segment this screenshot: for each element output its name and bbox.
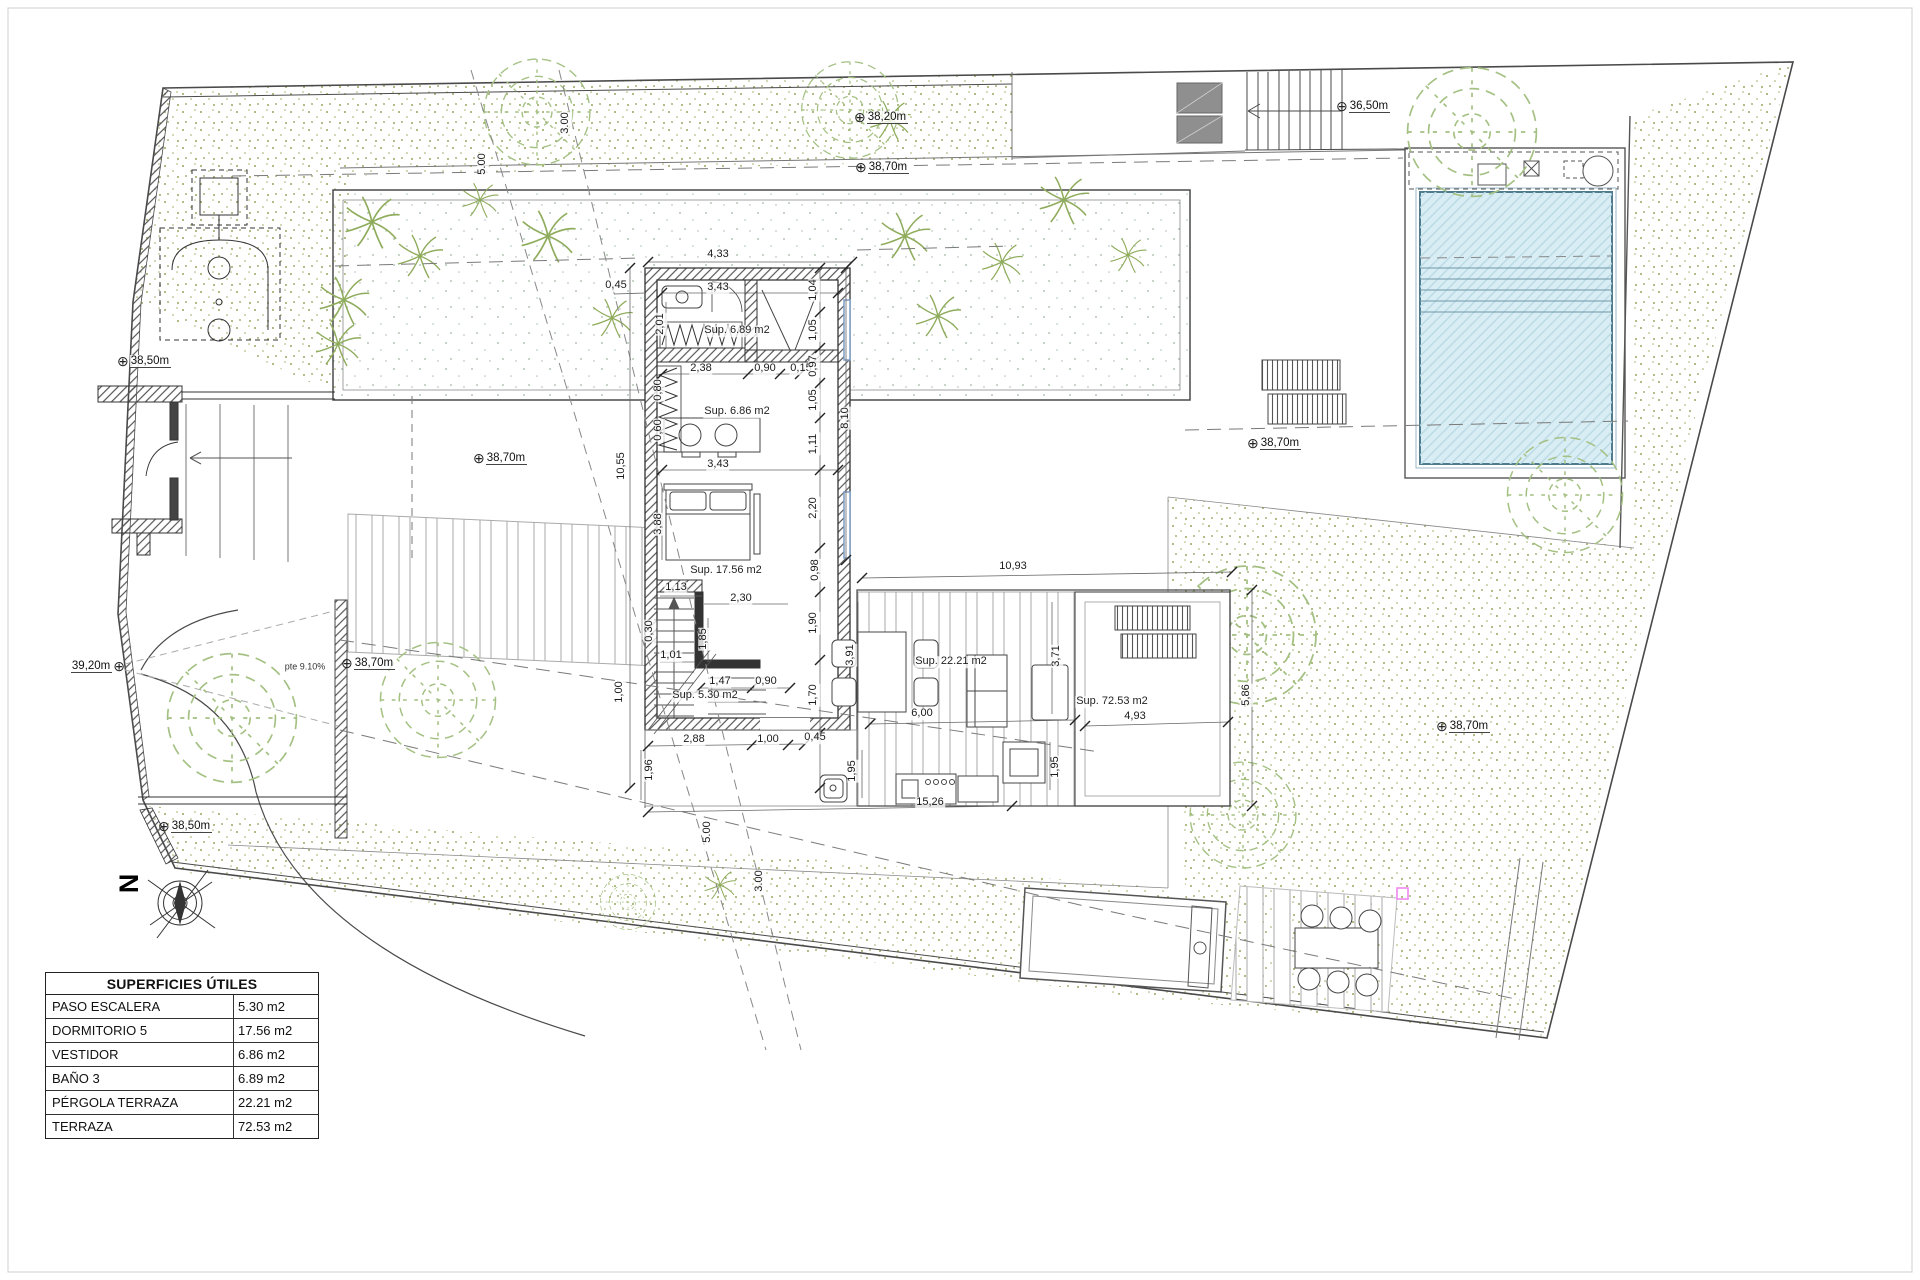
door-opening bbox=[760, 718, 810, 730]
dimension-label: 3,43 bbox=[706, 459, 729, 471]
dimension-label: 3,71 bbox=[1051, 644, 1063, 667]
elevation-target-icon: ⊕ bbox=[158, 819, 170, 833]
dimension-label: 0,45 bbox=[604, 280, 627, 292]
room-area-label: Sup. 17.56 m2 bbox=[689, 565, 763, 577]
compass-rose bbox=[148, 870, 215, 938]
elevation-value: 38,70m bbox=[868, 161, 909, 174]
dimension-label: 3.00 bbox=[754, 869, 766, 892]
elevation-marker: ⊕38,50m bbox=[158, 819, 212, 833]
elevation-target-icon: ⊕ bbox=[473, 451, 485, 465]
elevation-marker: ⊕38,20m bbox=[854, 110, 908, 124]
dimension-label: 1,85 bbox=[698, 627, 710, 650]
dimension-label: 0,90 bbox=[754, 676, 777, 688]
dimension-label: 1,47 bbox=[708, 676, 731, 688]
dimension-label: 1,70 bbox=[808, 683, 820, 706]
dimension-label: 3,43 bbox=[706, 282, 729, 294]
dimension-label: 10,93 bbox=[998, 561, 1028, 573]
elevation-marker: ⊕38,50m bbox=[117, 354, 171, 368]
dimension-label: 1,13 bbox=[664, 582, 687, 594]
table-row: PASO ESCALERA5.30 m2 bbox=[46, 995, 318, 1019]
dimension-label: 1,96 bbox=[644, 758, 656, 781]
elevation-marker: ⊕36,50m bbox=[1336, 99, 1390, 113]
elevation-target-icon: ⊕ bbox=[854, 110, 866, 124]
dimension-label: 5.00 bbox=[702, 820, 714, 843]
elevation-value: 38,70m bbox=[1260, 437, 1301, 450]
dimension-label: 1,05 bbox=[808, 318, 820, 341]
surface-table-body: PASO ESCALERA5.30 m2 DORMITORIO 517.56 m… bbox=[46, 995, 318, 1138]
chair bbox=[832, 678, 856, 706]
elevation-marker: ⊕38,70m bbox=[473, 451, 527, 465]
elevation-marker: ⊕38,70m bbox=[1247, 436, 1301, 450]
slope-note: pte 9.10% bbox=[284, 662, 327, 671]
dimension-label: 1,95 bbox=[847, 759, 859, 782]
elevation-target-icon: ⊕ bbox=[855, 160, 867, 174]
elevation-target-icon: ⊕ bbox=[1436, 719, 1448, 733]
dimension-label: 0,60 bbox=[653, 418, 665, 441]
dimension-label: 1,04 bbox=[808, 278, 820, 301]
elevation-target-icon: ⊕ bbox=[1336, 99, 1348, 113]
elevation-target-icon: ⊕ bbox=[117, 354, 129, 368]
elevation-value: 36,50m bbox=[1349, 100, 1390, 113]
dimension-label: 4,93 bbox=[1123, 711, 1146, 723]
elevation-marker: 39,20m⊕ bbox=[71, 659, 125, 673]
chair bbox=[914, 678, 938, 706]
dimension-label: 1,90 bbox=[808, 611, 820, 634]
kitchen-counter bbox=[958, 776, 998, 802]
garden-table bbox=[1295, 928, 1378, 968]
dimension-label: 6,00 bbox=[910, 708, 933, 720]
dimension-label: 1,00 bbox=[756, 734, 779, 746]
dimension-label: 5,86 bbox=[1241, 683, 1253, 706]
dimension-label: 2,01 bbox=[655, 312, 667, 335]
dimension-label: 15,26 bbox=[915, 797, 945, 809]
table-row: VESTIDOR6.86 m2 bbox=[46, 1043, 318, 1067]
dimension-label: 1,00 bbox=[614, 680, 626, 703]
dimension-label: 2,30 bbox=[729, 593, 752, 605]
dimension-label: 3,91 bbox=[845, 643, 857, 666]
elevation-marker: ⊕38,70m bbox=[1436, 719, 1490, 733]
surface-table-title: SUPERFICIES ÚTILES bbox=[46, 973, 318, 995]
elevation-value: 38,70m bbox=[486, 452, 527, 465]
elevation-value: 38,20m bbox=[867, 111, 908, 124]
dimension-label: 0,90 bbox=[753, 363, 776, 375]
site-plan-sheet: N 4,330,453,432,012,380,900,150,800,603,… bbox=[0, 0, 1920, 1280]
dimension-label: 3.00 bbox=[560, 111, 572, 134]
room-area-label: Sup. 6.86 m2 bbox=[703, 406, 770, 418]
dimension-label: 0,97 bbox=[808, 354, 820, 377]
dimension-label: 0,45 bbox=[803, 732, 826, 744]
elevation-marker: ⊕38,70m bbox=[855, 160, 909, 174]
spa-structure bbox=[1020, 888, 1226, 992]
roof-panels bbox=[1177, 83, 1222, 143]
dimension-label: 1,01 bbox=[659, 650, 682, 662]
elevation-marker: ⊕38,70m bbox=[341, 656, 395, 670]
dimension-label: 1,95 bbox=[1050, 755, 1062, 778]
elevation-value: 38,70m bbox=[1449, 720, 1490, 733]
dining-table bbox=[858, 632, 906, 712]
dimension-label: 5.00 bbox=[477, 152, 489, 175]
armchair bbox=[1032, 665, 1068, 720]
entry-steps bbox=[186, 404, 292, 562]
dimension-label: 0,30 bbox=[644, 619, 656, 642]
elevation-target-icon: ⊕ bbox=[341, 656, 353, 670]
dimension-label: 2,38 bbox=[689, 363, 712, 375]
dimension-label: 1,11 bbox=[808, 433, 820, 456]
dimension-label: 0,98 bbox=[810, 558, 822, 581]
table-row: BAÑO 36.89 m2 bbox=[46, 1067, 318, 1091]
table-row: TERRAZA72.53 m2 bbox=[46, 1115, 318, 1139]
dimension-label: 0,80 bbox=[653, 378, 665, 401]
elevation-value: 38,50m bbox=[171, 820, 212, 833]
elevation-target-icon: ⊕ bbox=[113, 659, 125, 673]
north-label: N bbox=[112, 874, 143, 894]
dimension-label: 2,88 bbox=[682, 734, 705, 746]
dimension-label: 3,88 bbox=[653, 512, 665, 535]
surface-table: SUPERFICIES ÚTILES PASO ESCALERA5.30 m2 … bbox=[45, 972, 319, 1139]
elevation-value: 38,50m bbox=[130, 355, 171, 368]
dimension-label: 2,20 bbox=[808, 496, 820, 519]
table-row: DORMITORIO 517.56 m2 bbox=[46, 1019, 318, 1043]
elevation-value: 38,70m bbox=[354, 657, 395, 670]
dimension-label: 8,10 bbox=[840, 406, 852, 429]
room-area-label: Sup. 22.21 m2 bbox=[914, 656, 988, 668]
room-area-label: Sup. 5.30 m2 bbox=[671, 690, 738, 702]
table-row: PÉRGOLA TERRAZA22.21 m2 bbox=[46, 1091, 318, 1115]
elevation-target-icon: ⊕ bbox=[1247, 436, 1259, 450]
dimension-label: 10,55 bbox=[616, 451, 628, 481]
elevation-value: 39,20m bbox=[71, 660, 112, 673]
window bbox=[844, 300, 850, 360]
swimming-pool bbox=[1416, 116, 1630, 548]
dimension-label: 4,33 bbox=[706, 249, 729, 261]
dimension-label: 1,05 bbox=[808, 388, 820, 411]
room-area-label: Sup. 6.89 m2 bbox=[703, 325, 770, 337]
room-area-label: Sup. 72.53 m2 bbox=[1075, 696, 1149, 708]
building bbox=[645, 268, 857, 808]
window bbox=[844, 492, 850, 558]
